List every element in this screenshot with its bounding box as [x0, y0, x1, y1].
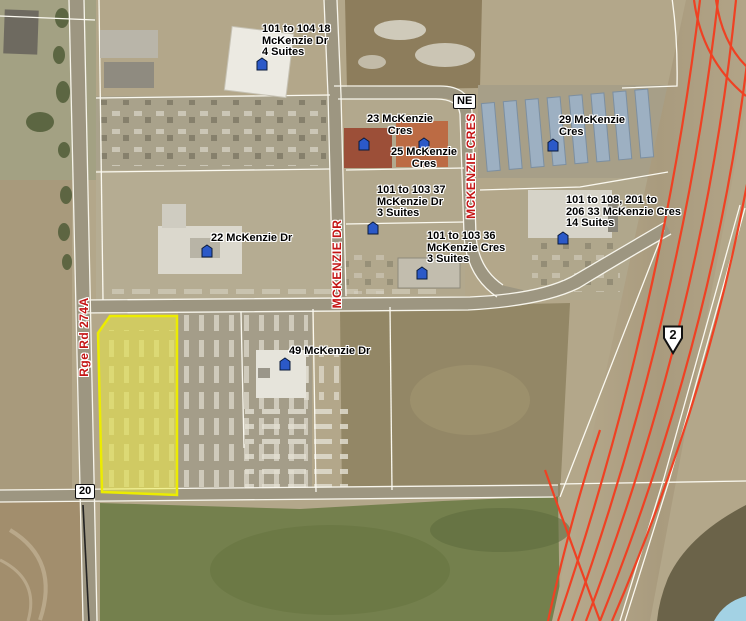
address-label-18-mckenzie: 101 to 104 18 McKenzie Dr 4 Suites — [262, 24, 331, 59]
street-label-mckenzie-cres: MCKENZIE CRES — [464, 111, 478, 221]
building-marker-icon[interactable] — [547, 138, 559, 152]
building-marker-icon[interactable] — [358, 137, 370, 151]
address-label-25-mckenzie: 25 McKenzie Cres — [388, 147, 460, 170]
highway-20-label: 20 — [75, 484, 95, 499]
building-marker-icon[interactable] — [416, 266, 428, 280]
aerial-imagery — [0, 0, 746, 621]
address-label-22-mckenzie: 22 McKenzie Dr — [211, 233, 292, 245]
highway-2-shield: 2 — [662, 325, 684, 355]
highlighted-parcel[interactable] — [98, 316, 177, 495]
building-marker-icon[interactable] — [557, 231, 569, 245]
address-label-37-mckenzie: 101 to 103 37 McKenzie Dr 3 Suites — [377, 185, 446, 220]
address-label-33-mckenzie: 101 to 108, 201 to 206 33 McKenzie Cres … — [566, 195, 681, 230]
svg-text:2: 2 — [669, 327, 676, 342]
address-label-29-mckenzie: 29 McKenzie Cres — [559, 115, 625, 138]
address-label-23-mckenzie: 23 McKenzie Cres — [362, 114, 438, 137]
section-label-ne: NE — [453, 94, 476, 109]
building-marker-icon[interactable] — [256, 57, 268, 71]
street-label-rge-rd-274a: Rge Rd 274A — [77, 297, 91, 377]
address-label-49-mckenzie: 49 McKenzie Dr — [289, 346, 370, 358]
street-label-mckenzie-dr: MCKENZIE DR — [330, 219, 344, 309]
building-marker-icon[interactable] — [279, 357, 291, 371]
building-marker-icon[interactable] — [367, 221, 379, 235]
building-marker-icon[interactable] — [201, 244, 213, 258]
address-label-36-mckenzie: 101 to 103 36 McKenzie Cres 3 Suites — [427, 231, 505, 266]
aerial-map[interactable]: 101 to 104 18 McKenzie Dr 4 Suites 23 Mc… — [0, 0, 746, 621]
